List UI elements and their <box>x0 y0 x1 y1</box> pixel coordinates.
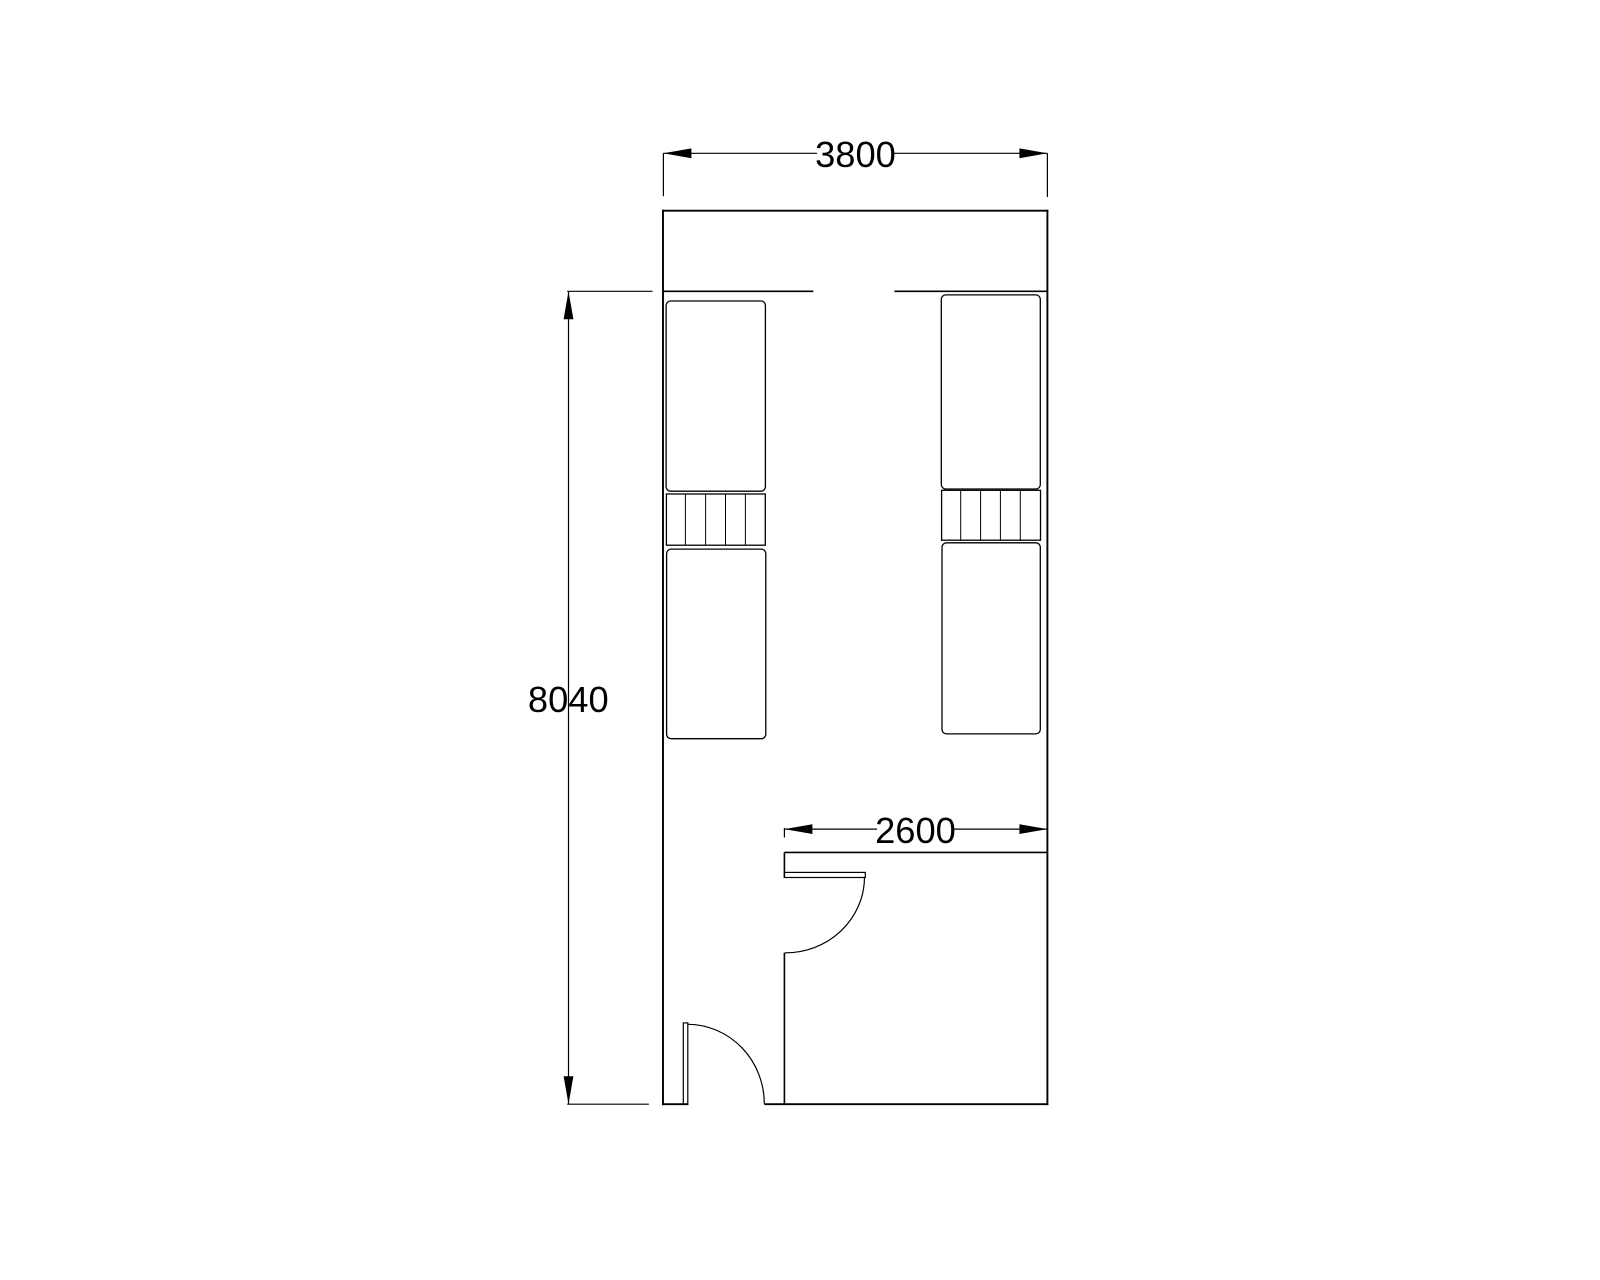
svg-text:2600: 2600 <box>875 810 956 851</box>
svg-text:8040: 8040 <box>528 679 609 720</box>
svg-text:3800: 3800 <box>815 134 896 175</box>
